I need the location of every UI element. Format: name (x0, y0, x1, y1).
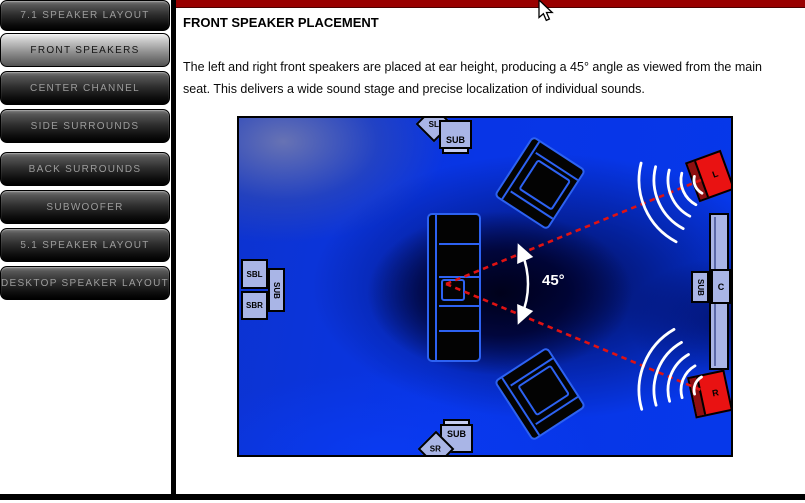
aim-lines (446, 180, 701, 390)
couch-seam (439, 305, 479, 307)
angle-value-label: 45° (542, 272, 565, 289)
mouse-cursor-icon (537, 0, 555, 24)
sidebar-item-front-speakers[interactable]: FRONT SPEAKERS (0, 33, 170, 67)
sidebar-item-71-speaker-layout[interactable]: 7.1 SPEAKER LAYOUT (0, 0, 170, 31)
sidebar-content-divider (171, 0, 176, 497)
subwoofer-top: SUB (439, 120, 472, 149)
center-channel-speaker: C (711, 269, 731, 304)
subwoofer-top-label: SUB (446, 135, 465, 145)
surround-back-left-speaker: SBL (241, 259, 268, 289)
couch-armrest-top (439, 243, 479, 245)
diagram-annotations (239, 118, 731, 455)
subwoofer-bottom-label: SUB (447, 429, 466, 439)
surround-left-label: SL (429, 119, 439, 128)
sidebar-item-51-speaker-layout[interactable]: 5.1 SPEAKER LAYOUT (0, 228, 170, 262)
armchair-top (494, 135, 587, 230)
surround-back-right-label: SBR (246, 301, 263, 310)
sidebar-item-side-surrounds[interactable]: SIDE SURROUNDS (0, 109, 170, 143)
surround-back-right-speaker: SBR (241, 291, 268, 320)
sidebar-item-center-channel[interactable]: CENTER CHANNEL (0, 71, 170, 105)
couch-seam (439, 276, 479, 278)
main-seat-cushion (441, 279, 465, 301)
page-description: The left and right front speakers are pl… (183, 57, 769, 100)
sidebar-item-back-surrounds[interactable]: BACK SURROUNDS (0, 152, 170, 186)
subwoofer-left-label: SUB (272, 282, 281, 299)
armchair-cushion (517, 364, 570, 416)
page-title: FRONT SPEAKER PLACEMENT (183, 15, 379, 30)
placement-diagram: SL SUB SUB SR SBL SUB SBR SUB (237, 116, 733, 457)
subwoofer-left: SUB (268, 268, 285, 312)
armchair-bottom (494, 346, 587, 441)
front-right-speaker: R (687, 370, 733, 419)
couch-armrest-bottom (439, 330, 479, 332)
main-couch (427, 213, 481, 362)
angle-arc (521, 251, 528, 316)
sidebar-item-desktop-speaker-layout[interactable]: DESKTOP SPEAKER LAYOUT (0, 266, 170, 300)
couch-backrest (429, 215, 437, 360)
surround-right-label: SR (430, 445, 441, 454)
subwoofer-right: SUB (691, 271, 709, 303)
surround-back-left-label: SBL (247, 270, 263, 279)
top-accent-bar (176, 0, 805, 8)
sidebar-item-subwoofer[interactable]: SUBWOOFER (0, 190, 170, 224)
bottom-border-bar (0, 494, 805, 500)
center-channel-label: C (718, 282, 725, 292)
speaker-guide-window: 7.1 SPEAKER LAYOUT FRONT SPEAKERS CENTER… (0, 0, 805, 503)
front-left-speaker: L (685, 150, 733, 202)
subwoofer-right-label: SUB (696, 279, 705, 296)
